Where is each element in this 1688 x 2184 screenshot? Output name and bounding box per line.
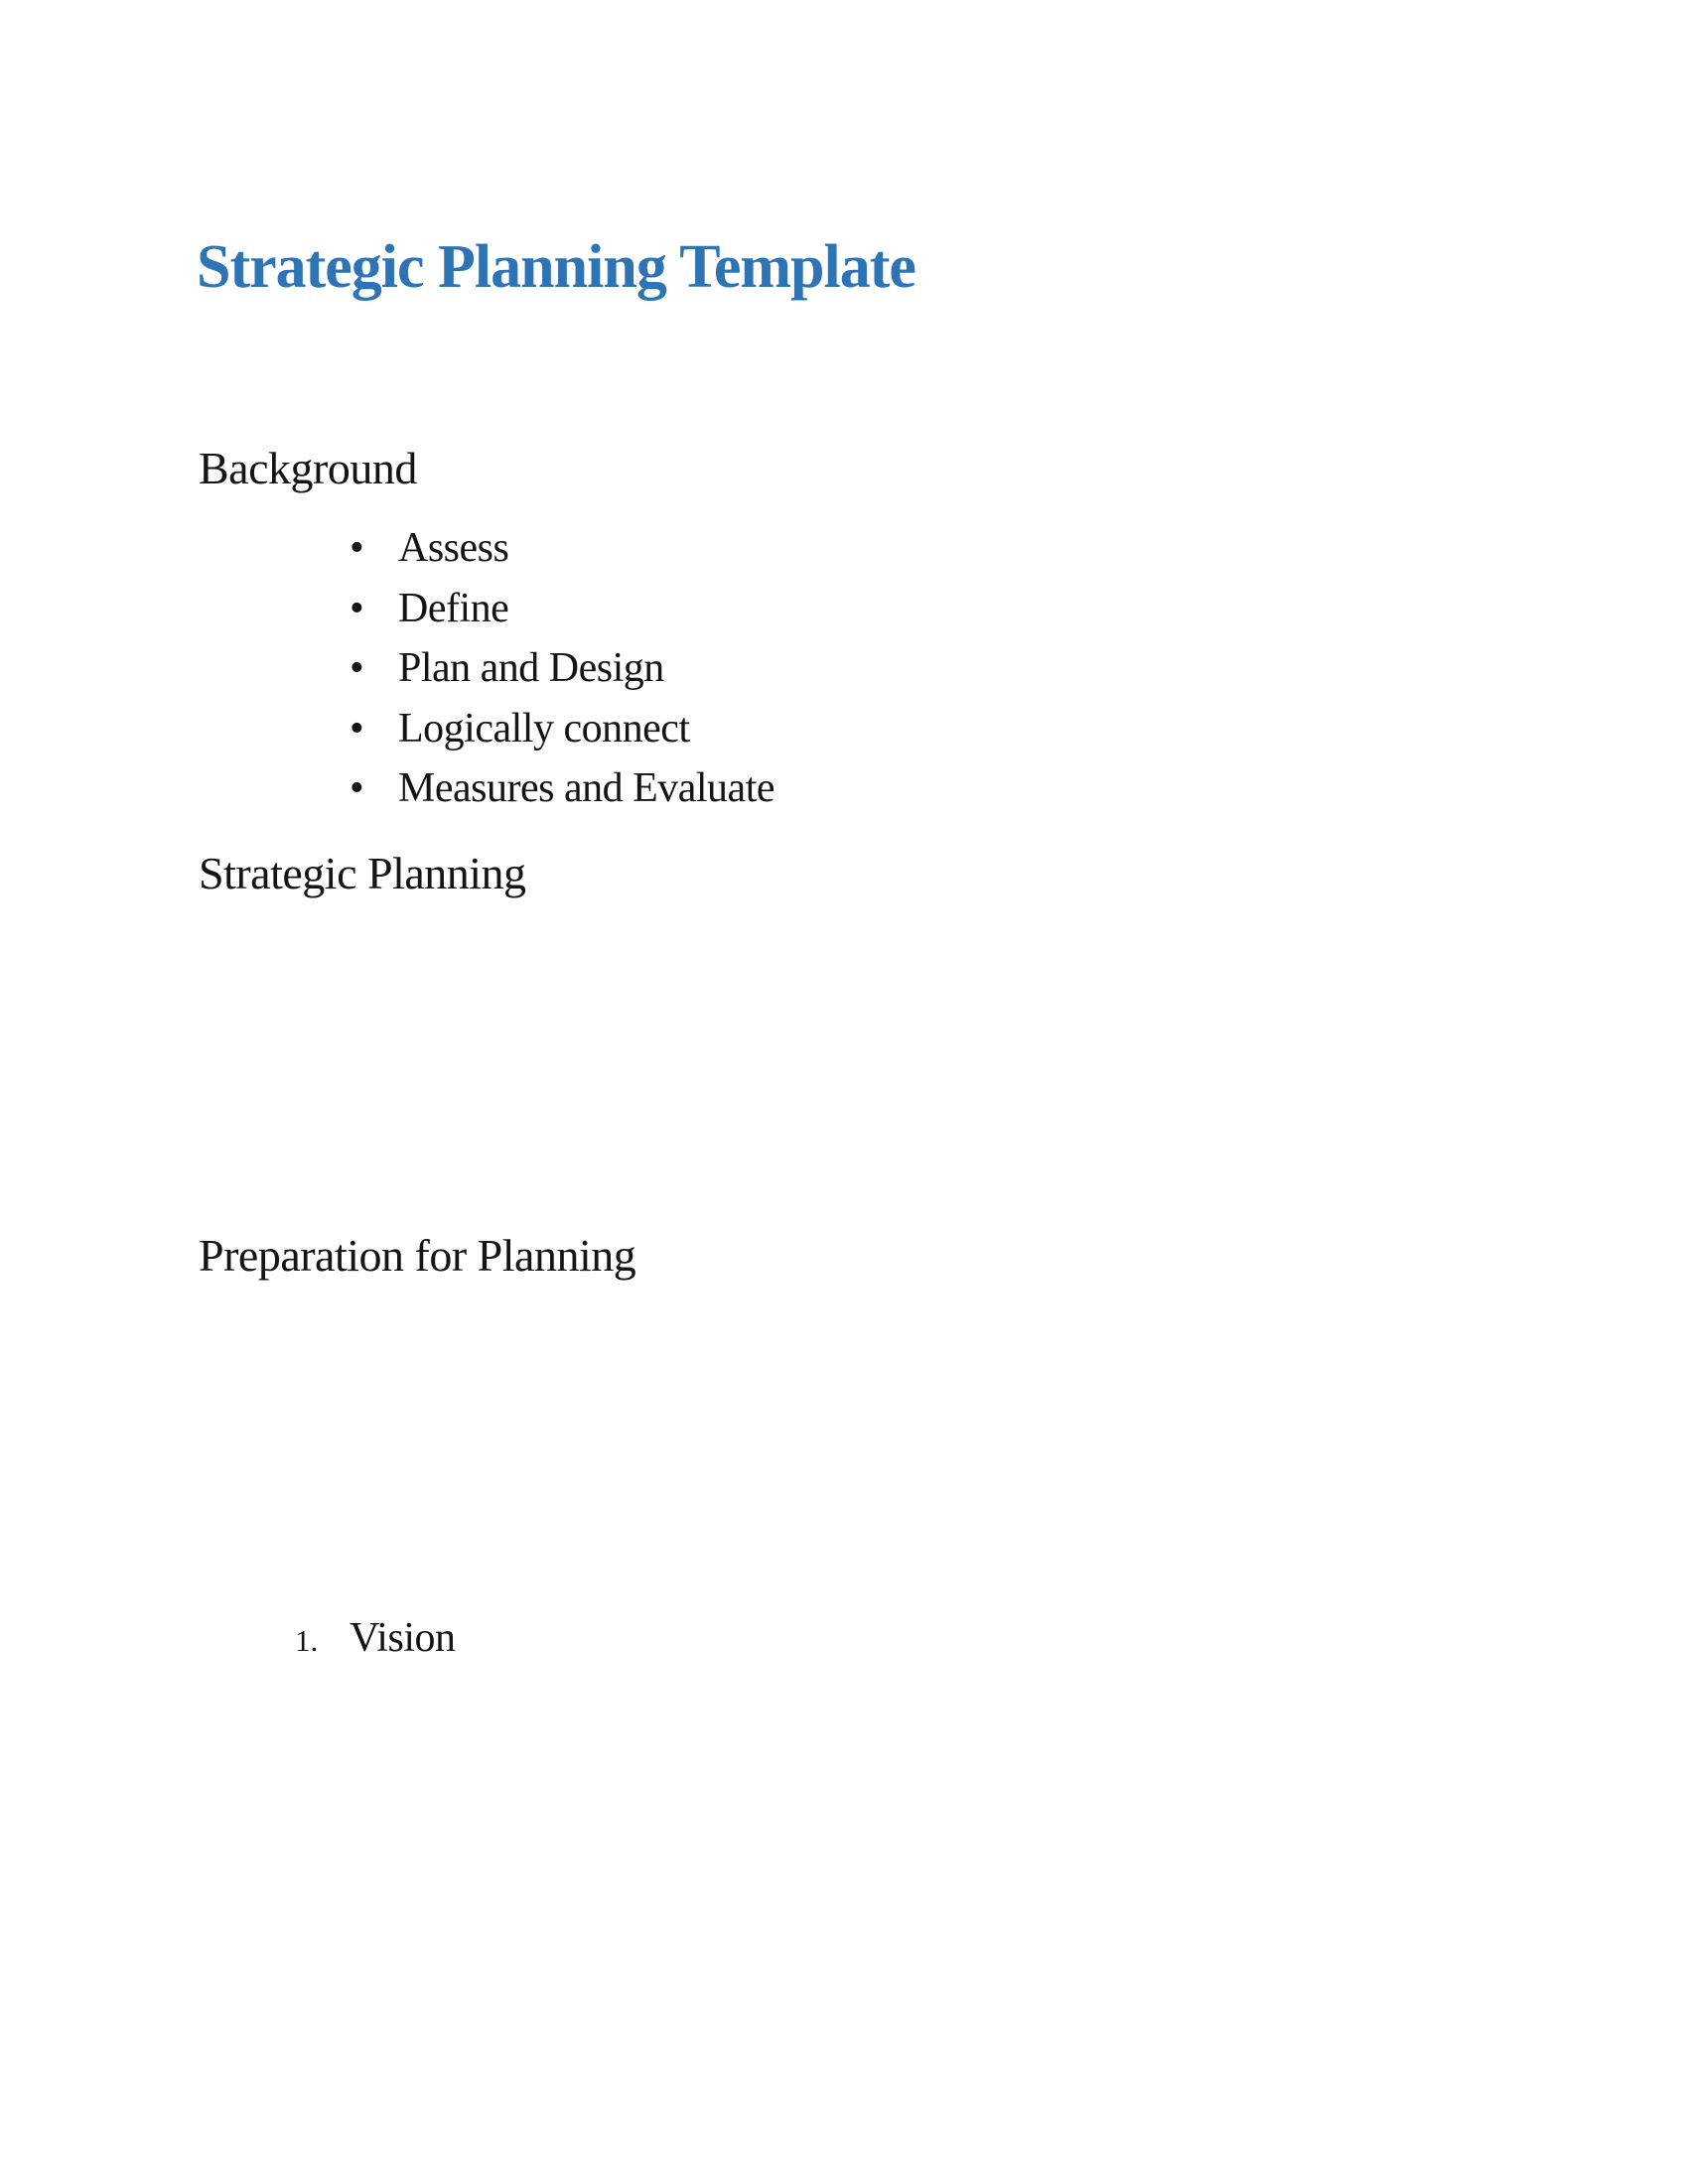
document-title: Strategic Planning Template xyxy=(197,236,915,298)
bullet-marker: • xyxy=(350,638,398,699)
bullet-marker: • xyxy=(350,518,398,579)
bullet-label: Logically connect xyxy=(398,706,690,751)
bullet-label: Assess xyxy=(398,525,508,571)
bullet-marker: • xyxy=(350,758,398,819)
bullet-label: Define xyxy=(398,586,508,631)
heading-strategic-planning: Strategic Planning xyxy=(199,851,526,896)
bullet-marker: • xyxy=(350,699,398,759)
background-bullet-list: • Assess • Define • Plan and Design • Lo… xyxy=(350,518,774,819)
list-item: • Measures and Evaluate xyxy=(350,758,774,819)
document-page: Strategic Planning Template Background •… xyxy=(0,0,1688,2184)
heading-preparation-for-planning: Preparation for Planning xyxy=(199,1233,635,1279)
heading-background: Background xyxy=(199,446,417,491)
list-item: • Define xyxy=(350,579,774,639)
bullet-label: Measures and Evaluate xyxy=(398,765,774,811)
list-item: • Assess xyxy=(350,518,774,579)
numbered-item-number: 1. xyxy=(295,1625,350,1656)
list-item: • Logically connect xyxy=(350,699,774,759)
numbered-item-label: Vision xyxy=(350,1615,456,1661)
list-item: • Plan and Design xyxy=(350,638,774,699)
bullet-label: Plan and Design xyxy=(398,645,664,691)
numbered-item-vision: 1.Vision xyxy=(295,1617,456,1659)
bullet-marker: • xyxy=(350,579,398,639)
